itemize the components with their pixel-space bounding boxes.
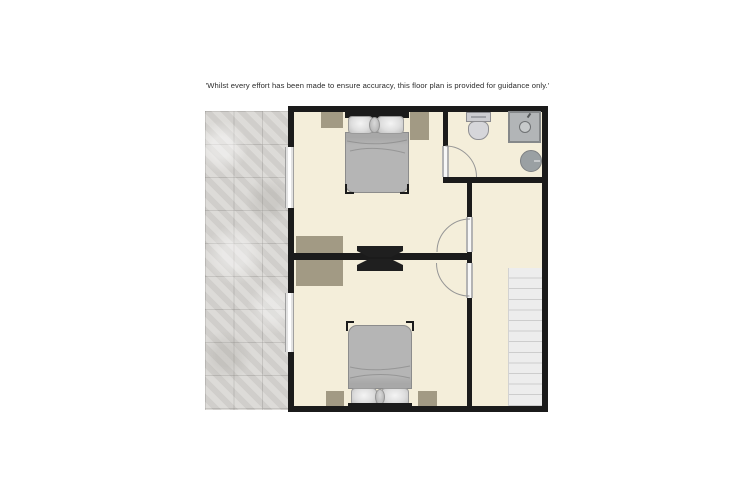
bed-bracket xyxy=(347,322,354,331)
door-swing-arcs xyxy=(437,146,477,296)
tv-icon-bottom xyxy=(357,259,403,271)
duvet-fold xyxy=(350,366,410,370)
plan-vector-overlay xyxy=(0,0,755,504)
bed-bracket xyxy=(346,184,354,193)
duvet-fold xyxy=(347,140,407,144)
duvet-fold xyxy=(350,148,405,153)
floorplan-image: 'Whilst every effort has been made to en… xyxy=(0,0,755,504)
door-arc-bedroom-bottom xyxy=(437,263,470,296)
wall-tv-unit xyxy=(357,246,403,271)
bed-frame-brackets xyxy=(346,184,413,331)
bed-bracket xyxy=(400,184,408,193)
tv-icon-top xyxy=(357,246,403,257)
bed-bracket xyxy=(406,322,413,331)
door-arc-bedroom-top xyxy=(437,219,470,252)
door-arc-bathroom xyxy=(446,146,477,177)
duvet-fold xyxy=(350,375,410,379)
